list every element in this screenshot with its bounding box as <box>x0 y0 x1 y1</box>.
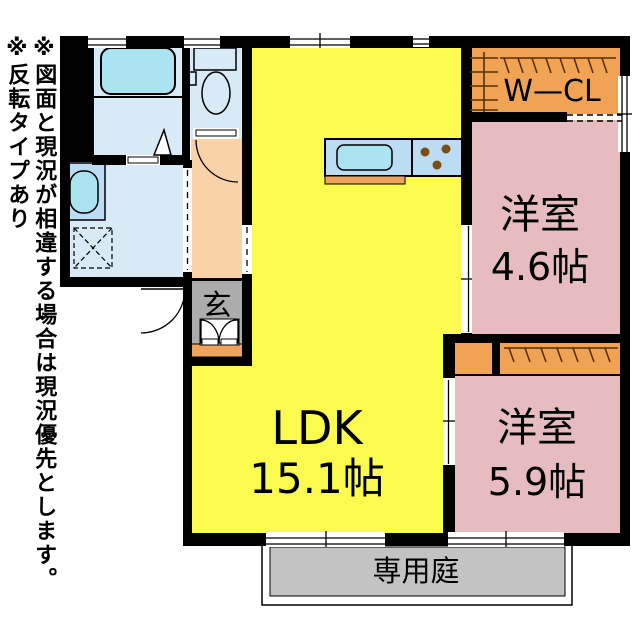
kitchen-sink <box>337 145 392 170</box>
counter-edge <box>325 176 405 184</box>
label-bedroom2-size: 5.9帖 <box>488 460 586 504</box>
label-entrance: 玄 <box>202 288 231 322</box>
washroom-sliding-door <box>183 168 192 272</box>
entrance-step <box>191 344 244 357</box>
floorplan-page: ※図面と現況が相違する場合は現況優先とします。 ※反転タイプあり <box>0 0 640 640</box>
closet-bottom-line <box>455 374 620 376</box>
window-toilet-top <box>184 33 220 48</box>
hall-ldk-door <box>242 225 252 274</box>
window-ldk-bottom <box>266 531 385 547</box>
stove-burner <box>442 145 451 154</box>
ldk-bedroom1-sliding-door <box>461 225 472 333</box>
ldk-bedroom2-sliding-door <box>443 378 455 465</box>
stove-burner <box>421 148 430 157</box>
label-bedroom2: 洋室 <box>497 405 577 451</box>
label-ldk-size: 15.1帖 <box>249 454 385 503</box>
window-ldk-top <box>290 32 350 48</box>
floor-plan: LDK 15.1帖 洋室 4.6帖 洋室 5.9帖 W—CL 玄 専用庭 <box>0 0 640 640</box>
label-bedroom1: 洋室 <box>500 192 580 238</box>
front-door-swing <box>141 289 185 333</box>
label-wcl: W—CL <box>503 74 601 109</box>
vanity-sink <box>64 163 105 220</box>
window-top-small <box>413 34 429 47</box>
bathtub <box>92 48 182 97</box>
label-ldk: LDK <box>271 401 364 455</box>
hallway <box>191 139 242 280</box>
closet-small <box>455 343 492 375</box>
label-bedroom1-size: 4.6帖 <box>491 245 589 289</box>
stove-burner <box>433 161 442 170</box>
window-bedroom2-bottom <box>448 531 564 547</box>
label-garden: 専用庭 <box>372 554 459 588</box>
entrance-double-door <box>200 319 239 345</box>
window-bathroom-top <box>88 33 126 48</box>
window-right <box>617 76 632 152</box>
